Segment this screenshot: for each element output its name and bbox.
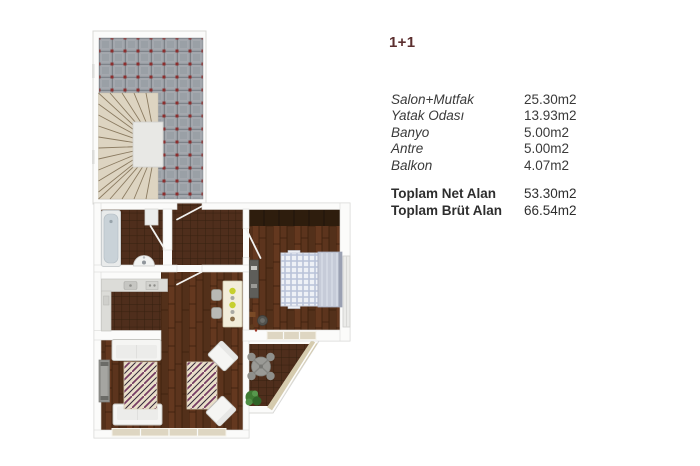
wall-window-notch bbox=[92, 64, 95, 78]
living-room-window bbox=[112, 429, 226, 437]
stair-hall-block bbox=[92, 31, 206, 204]
hallway-floor bbox=[172, 204, 243, 266]
area-value: 25.30m2 bbox=[524, 92, 577, 107]
bedroom-window bbox=[343, 256, 350, 327]
total-value: 53.30m2 bbox=[524, 186, 577, 201]
area-value: 4.07m2 bbox=[524, 158, 569, 173]
kitchen-floor bbox=[111, 291, 162, 331]
area-label: Yatak Odası bbox=[391, 108, 464, 123]
balcony-door-window bbox=[267, 332, 316, 340]
area-label: Salon+Mutfak bbox=[391, 92, 474, 107]
area-value: 5.00m2 bbox=[524, 141, 569, 156]
total-label: Toplam Brüt Alan bbox=[391, 203, 502, 218]
bed-icon bbox=[281, 251, 342, 309]
plan-type-title: 1+1 bbox=[389, 34, 415, 51]
total-label: Toplam Net Alan bbox=[391, 186, 496, 201]
total-value: 66.54m2 bbox=[524, 203, 577, 218]
area-value: 13.93m2 bbox=[524, 108, 577, 123]
stair-landing bbox=[133, 122, 163, 167]
sofa-icon bbox=[112, 340, 161, 361]
floor-plan bbox=[0, 0, 700, 466]
area-value: 5.00m2 bbox=[524, 125, 569, 140]
page: 1+1 Salon+Mutfak 25.30m2 Yatak Odası 13.… bbox=[0, 0, 700, 466]
balcony-table-icon bbox=[247, 353, 274, 380]
shower-unit bbox=[145, 209, 158, 225]
area-label: Balkon bbox=[391, 158, 432, 173]
dresser bbox=[250, 260, 259, 298]
wall-window-notch bbox=[92, 150, 95, 164]
area-label: Banyo bbox=[391, 125, 429, 140]
area-label: Antre bbox=[391, 141, 423, 156]
rug bbox=[124, 362, 157, 409]
bathtub-icon bbox=[102, 211, 121, 267]
wardrobe bbox=[249, 210, 340, 227]
tv-console bbox=[99, 360, 110, 402]
rug bbox=[187, 362, 217, 409]
